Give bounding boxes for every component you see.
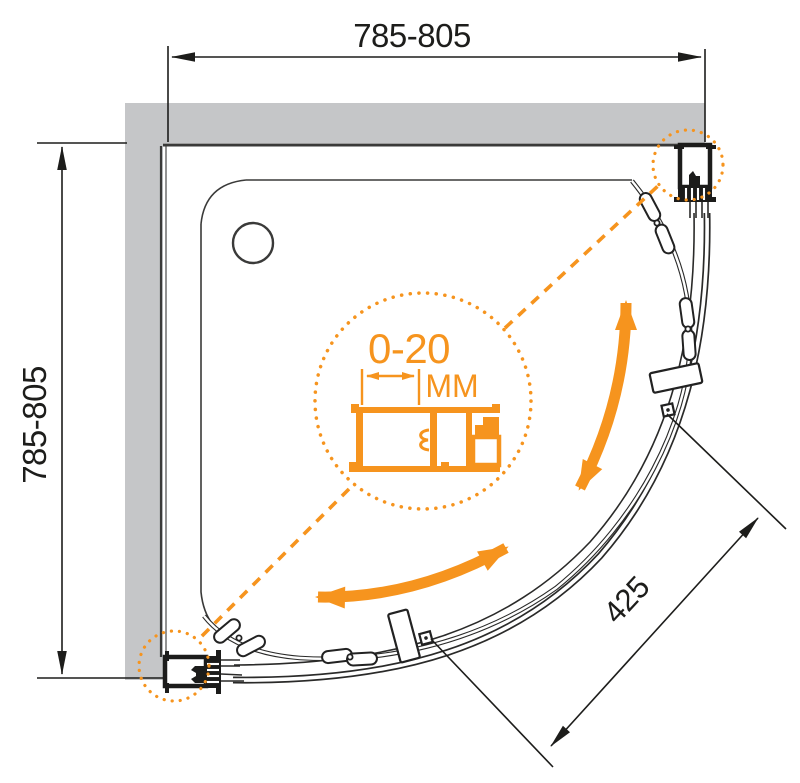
- handle-right: [649, 363, 702, 393]
- roller-hub: [654, 220, 659, 225]
- roller: [638, 191, 663, 223]
- tray-corner: [201, 180, 246, 224]
- roller: [679, 297, 695, 328]
- adjustment-unit-label: MM: [425, 368, 478, 404]
- adjustment-range-label: 0-20: [368, 325, 450, 372]
- adjustment-dimension: [362, 369, 419, 405]
- profile-foot: [216, 650, 221, 657]
- extension-line: [667, 414, 786, 529]
- height-dimension-label: 785-805: [16, 366, 53, 484]
- profile-foot: [216, 687, 221, 694]
- shower-tray: [201, 180, 632, 625]
- roller: [682, 330, 696, 361]
- wall-top: [125, 103, 705, 143]
- roller-hub: [347, 654, 352, 659]
- wall-profile-bottom-left: [165, 650, 221, 694]
- drain: [233, 223, 273, 263]
- door-swing-arrow-horizontal: [318, 548, 506, 597]
- diagram-svg: 785-805 785-805: [0, 0, 800, 783]
- dimension-line: [551, 518, 758, 746]
- width-dimension-label: 785-805: [353, 17, 471, 54]
- extension-line: [431, 639, 553, 767]
- profile-box: [473, 437, 499, 465]
- shower-enclosure-diagram: 785-805 785-805: [0, 0, 800, 783]
- detail-leader-line: [201, 489, 349, 637]
- radius-dimension-label: 425: [596, 570, 656, 631]
- door-swing-arrow-vertical: [580, 303, 626, 488]
- roller: [654, 223, 676, 255]
- profile-adjustment-detail: 0-20 MM: [349, 325, 500, 472]
- wall-left: [125, 103, 163, 680]
- roller-hub: [685, 326, 690, 331]
- profile-comb: [206, 656, 221, 688]
- clamp-clip: [421, 430, 429, 450]
- detail-leader-line: [505, 185, 659, 328]
- profile-foot: [709, 197, 716, 202]
- tray-left-edge: [201, 224, 213, 625]
- roller-hub: [236, 635, 241, 640]
